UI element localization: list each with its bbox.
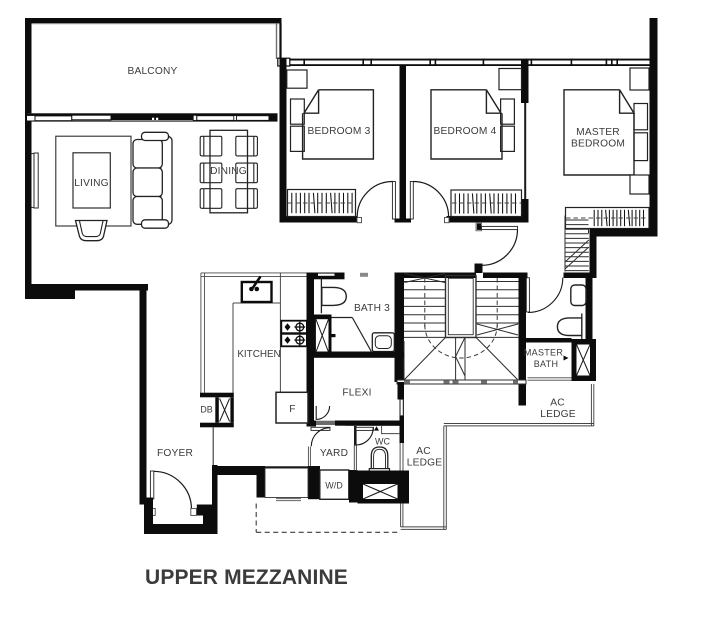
- svg-text:BATH: BATH: [534, 359, 559, 369]
- svg-text:BEDROOM: BEDROOM: [571, 139, 625, 150]
- svg-text:YARD: YARD: [320, 448, 348, 459]
- svg-text:KITCHEN: KITCHEN: [237, 349, 280, 360]
- svg-text:BEDROOM 3: BEDROOM 3: [308, 126, 371, 137]
- svg-text:DINING: DINING: [210, 166, 247, 177]
- svg-text:WC: WC: [375, 437, 390, 447]
- svg-text:AC: AC: [550, 398, 565, 409]
- svg-text:UPPER MEZZANINE: UPPER MEZZANINE: [145, 566, 348, 589]
- svg-text:BALCONY: BALCONY: [127, 66, 177, 77]
- svg-text:DB: DB: [200, 405, 213, 415]
- svg-text:F: F: [289, 404, 295, 415]
- svg-text:W/D: W/D: [325, 481, 343, 491]
- svg-text:BATH 3: BATH 3: [354, 303, 390, 314]
- svg-text:AC: AC: [416, 446, 431, 457]
- svg-text:BEDROOM 4: BEDROOM 4: [434, 126, 497, 137]
- svg-text:FOYER: FOYER: [157, 448, 193, 459]
- svg-text:MASTER: MASTER: [524, 348, 564, 358]
- svg-text:FLEXI: FLEXI: [342, 388, 371, 399]
- svg-text:LIVING: LIVING: [74, 178, 109, 189]
- svg-text:LEDGE: LEDGE: [540, 409, 576, 420]
- svg-text:MASTER: MASTER: [576, 127, 620, 138]
- svg-text:LEDGE: LEDGE: [407, 458, 443, 469]
